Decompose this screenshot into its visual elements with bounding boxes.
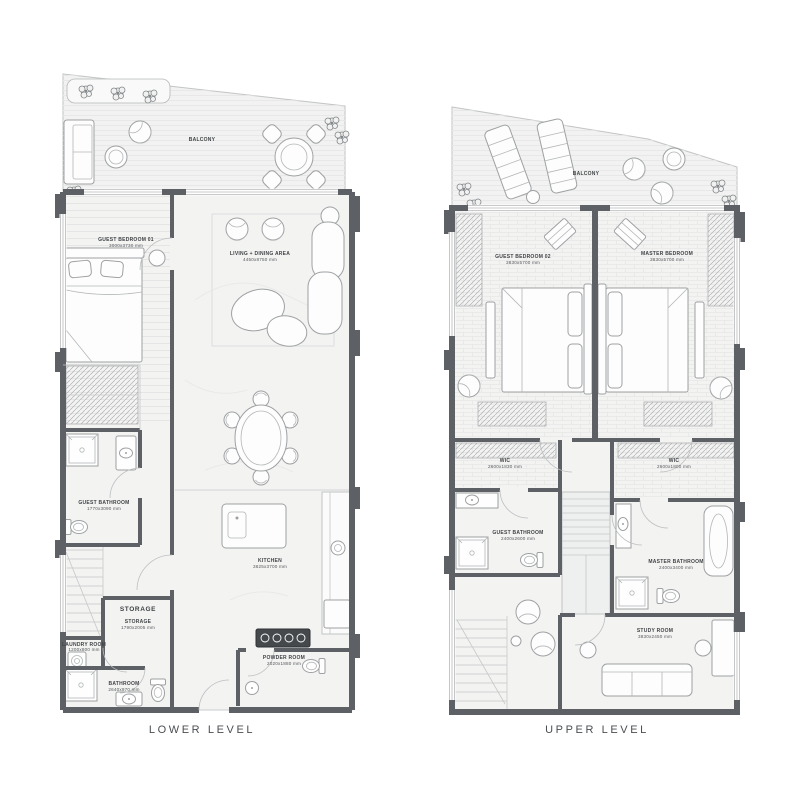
svg-text:1790x2005 mm: 1790x2005 mm [121, 625, 155, 630]
outdoor-table [663, 148, 685, 170]
upper-balcony: BALCONY [452, 107, 737, 212]
sink [120, 448, 133, 458]
svg-text:3000x3730 mm: 3000x3730 mm [109, 243, 143, 248]
svg-text:2640x970 mm: 2640x970 mm [108, 687, 139, 692]
bathtub [704, 506, 733, 576]
lower-level-plan: BALCONY [55, 74, 360, 736]
wic-wardrobe [456, 443, 556, 458]
shower [66, 434, 98, 466]
plant-icon [457, 183, 471, 196]
sink [123, 694, 136, 704]
toilet [521, 553, 544, 568]
desk-chair [695, 640, 711, 656]
balcony-label: BALCONY [573, 171, 600, 177]
svg-text:2020x1880 mm: 2020x1880 mm [267, 661, 301, 666]
room-label-powder: POWDER ROOM 2020x1880 mm [263, 655, 305, 666]
svg-text:2600x1800 mm: 2600x1800 mm [657, 464, 691, 469]
bed [64, 248, 144, 362]
balcony-label: BALCONY [189, 137, 216, 143]
toilet [151, 679, 166, 702]
wic-wardrobe [618, 443, 734, 458]
svg-text:2400x2600 mm: 2400x2600 mm [501, 536, 535, 541]
bed [502, 284, 592, 394]
toilet [303, 659, 326, 674]
svg-text:1200x800 mm: 1200x800 mm [68, 647, 99, 652]
svg-text:3830x5700 mm: 3830x5700 mm [506, 260, 540, 265]
svg-text:STORAGE: STORAGE [120, 606, 156, 613]
floorplan-canvas: BALCONY [0, 0, 800, 800]
bench [486, 302, 495, 378]
svg-text:3625x3700 mm: 3625x3700 mm [253, 564, 287, 569]
stairwell [562, 492, 610, 614]
closet [708, 214, 734, 306]
nightstand [149, 250, 165, 266]
upper-level-plan: BALCONY [444, 107, 745, 736]
lower-level-title: LOWER LEVEL [149, 724, 255, 736]
shower [456, 537, 488, 569]
plant-icon [711, 180, 725, 193]
bed [598, 284, 688, 394]
armchair [226, 218, 248, 240]
stove [256, 629, 310, 647]
outdoor-side-table [527, 191, 540, 204]
tv-console [478, 402, 546, 426]
sink [466, 495, 479, 505]
kitchen-sink [331, 541, 345, 555]
bench [695, 302, 704, 378]
sink [618, 518, 628, 531]
closet [456, 214, 482, 306]
desk [712, 620, 734, 676]
shower [616, 577, 648, 609]
svg-text:4450x8750 mm: 4450x8750 mm [243, 257, 277, 262]
toilet [657, 589, 680, 604]
room-label-bathroom: BATHROOM 2640x970 mm [108, 681, 139, 692]
upper-level-title: UPPER LEVEL [545, 724, 649, 736]
outdoor-side-table [105, 146, 127, 168]
floorplan-page: BALCONY [0, 0, 800, 800]
tv-console [644, 402, 712, 426]
kitchen-island [222, 504, 286, 548]
toilet [65, 520, 88, 535]
plant-icon [79, 85, 93, 98]
plant-icon [111, 87, 125, 100]
shower [65, 669, 97, 701]
room-label-study: STUDY ROOM 3830x2450 mm [637, 628, 673, 639]
svg-text:3830x5700 mm: 3830x5700 mm [650, 257, 684, 262]
svg-text:1770x3090 mm: 1770x3090 mm [87, 506, 121, 511]
lower-balcony: BALCONY [63, 74, 349, 206]
svg-text:3830x2450 mm: 3830x2450 mm [638, 634, 672, 639]
fridge [324, 600, 350, 628]
study-sofa [602, 664, 692, 696]
plant-icon [325, 117, 339, 130]
plant-icon [143, 90, 157, 103]
svg-text:2600x1830 mm: 2600x1830 mm [488, 464, 522, 469]
room-label-laundry: LAUNDRY ROOM 1200x800 mm [62, 642, 106, 652]
svg-text:2400x3400 mm: 2400x3400 mm [659, 565, 693, 570]
wardrobe [66, 366, 138, 424]
room-label-kitchen: KITCHEN 3625x3700 mm [253, 558, 287, 569]
plant-icon [335, 131, 349, 144]
armchair [262, 218, 284, 240]
outdoor-sofa [64, 120, 94, 184]
